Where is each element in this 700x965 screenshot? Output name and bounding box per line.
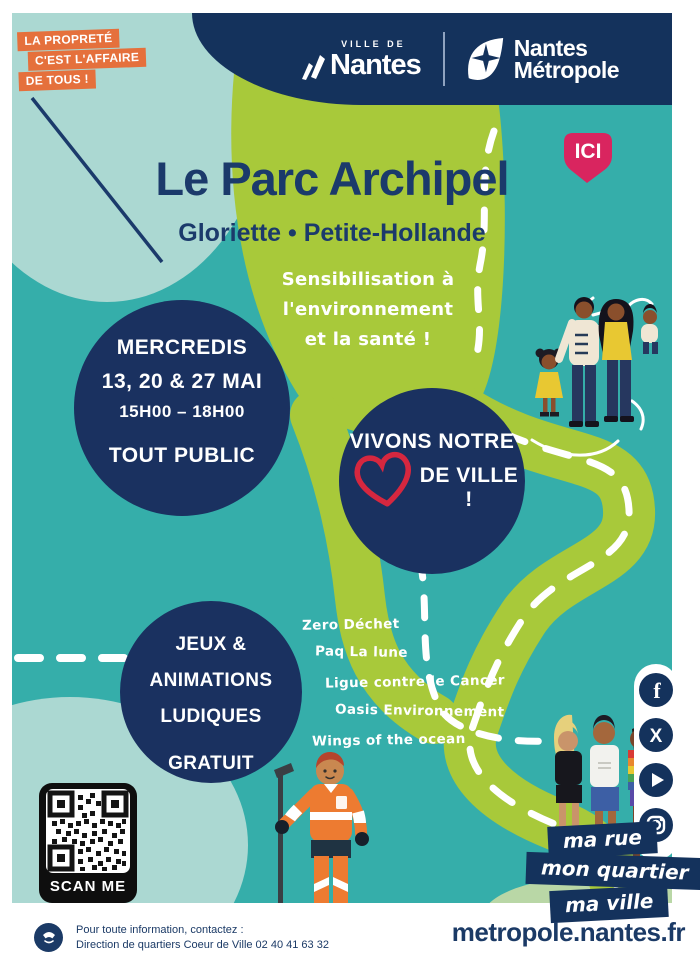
cleanliness-badge: LA PROPRETÉ C'EST L'AFFAIRE DE TOUS ! xyxy=(17,28,147,91)
schedule-dates: 13, 20 & 27 MAI xyxy=(74,365,290,399)
street-cleaner-illustration xyxy=(264,746,379,903)
metropole-line2: Métropole xyxy=(514,59,619,81)
nantes-wave-icon xyxy=(300,50,330,80)
contact-line2: Direction de quartiers Coeur de Ville 02… xyxy=(76,938,329,953)
heart-icon xyxy=(351,448,417,512)
svg-text:X: X xyxy=(650,726,663,747)
ici-label: ICI xyxy=(575,140,602,163)
svg-text:f: f xyxy=(653,678,661,703)
activities-line2: ANIMATIONS xyxy=(120,663,302,699)
poster-page: VILLE DE Nantes Nantes Métropole xyxy=(0,0,700,965)
partner-item: Paq La lune xyxy=(315,637,505,669)
activities-line1: JEUX & xyxy=(120,627,302,663)
partner-item: Ligue contre le Cancer xyxy=(325,666,505,698)
qr-code[interactable]: SCAN ME xyxy=(39,783,137,903)
ici-pin-badge: ICI xyxy=(556,130,616,190)
schedule-audience: TOUT PUBLIC xyxy=(74,439,290,473)
scan-me-label: SCAN ME xyxy=(46,878,130,895)
x-icon[interactable]: X xyxy=(639,718,673,752)
schedule-hours: 15H00 – 18H00 xyxy=(74,399,290,425)
partner-list: Zero Déchet Paq La lune Ligue contre le … xyxy=(298,610,505,755)
motto-circle: VIVONS NOTRE DE VILLE ! xyxy=(339,388,525,574)
header-divider xyxy=(443,32,445,86)
cleanliness-line2: C'EST L'AFFAIRE xyxy=(28,48,147,71)
tagline-line2: l'environnement xyxy=(250,295,486,325)
qr-pattern xyxy=(46,789,130,873)
ville-de-label: VILLE DE xyxy=(341,39,406,49)
partner-item: Oasis Environnement xyxy=(335,696,505,728)
contact-info: Pour toute information, contactez : Dire… xyxy=(76,923,329,953)
city-badge-quartier: mon quartier xyxy=(525,852,700,890)
tagline-line1: Sensibilisation à xyxy=(250,265,486,295)
city-badges: ma rue mon quartier ma ville xyxy=(520,824,690,924)
youtube-icon[interactable] xyxy=(639,763,673,797)
schedule-circle: MERCREDIS 13, 20 & 27 MAI 15H00 – 18H00 … xyxy=(74,300,290,516)
nantes-wordmark: Nantes xyxy=(330,50,421,80)
phone-icon xyxy=(34,923,63,952)
nantes-metropole-compass-icon xyxy=(463,34,507,84)
partner-item: Zero Déchet xyxy=(302,608,505,641)
family-illustration xyxy=(528,295,668,457)
page-title: Le Parc Archipel xyxy=(62,151,602,206)
schedule-days: MERCREDIS xyxy=(74,331,290,365)
activities-line3: LUDIQUES xyxy=(120,699,302,735)
ville-de-nantes-logo: VILLE DE Nantes xyxy=(300,39,421,80)
cleanliness-line1: LA PROPRETÉ xyxy=(17,29,120,52)
page-subtitle: Gloriette • Petite-Hollande xyxy=(72,219,592,248)
nantes-metropole-logo: Nantes Métropole xyxy=(463,34,619,84)
website-link[interactable]: metropole.nantes.fr xyxy=(452,917,685,948)
facebook-icon[interactable]: f xyxy=(639,673,673,707)
metropole-line1: Nantes xyxy=(514,37,619,59)
motto-line2: DE VILLE ! xyxy=(413,464,525,512)
cleanliness-line3: DE TOUS ! xyxy=(18,70,96,92)
contact-line1: Pour toute information, contactez : xyxy=(76,923,329,938)
